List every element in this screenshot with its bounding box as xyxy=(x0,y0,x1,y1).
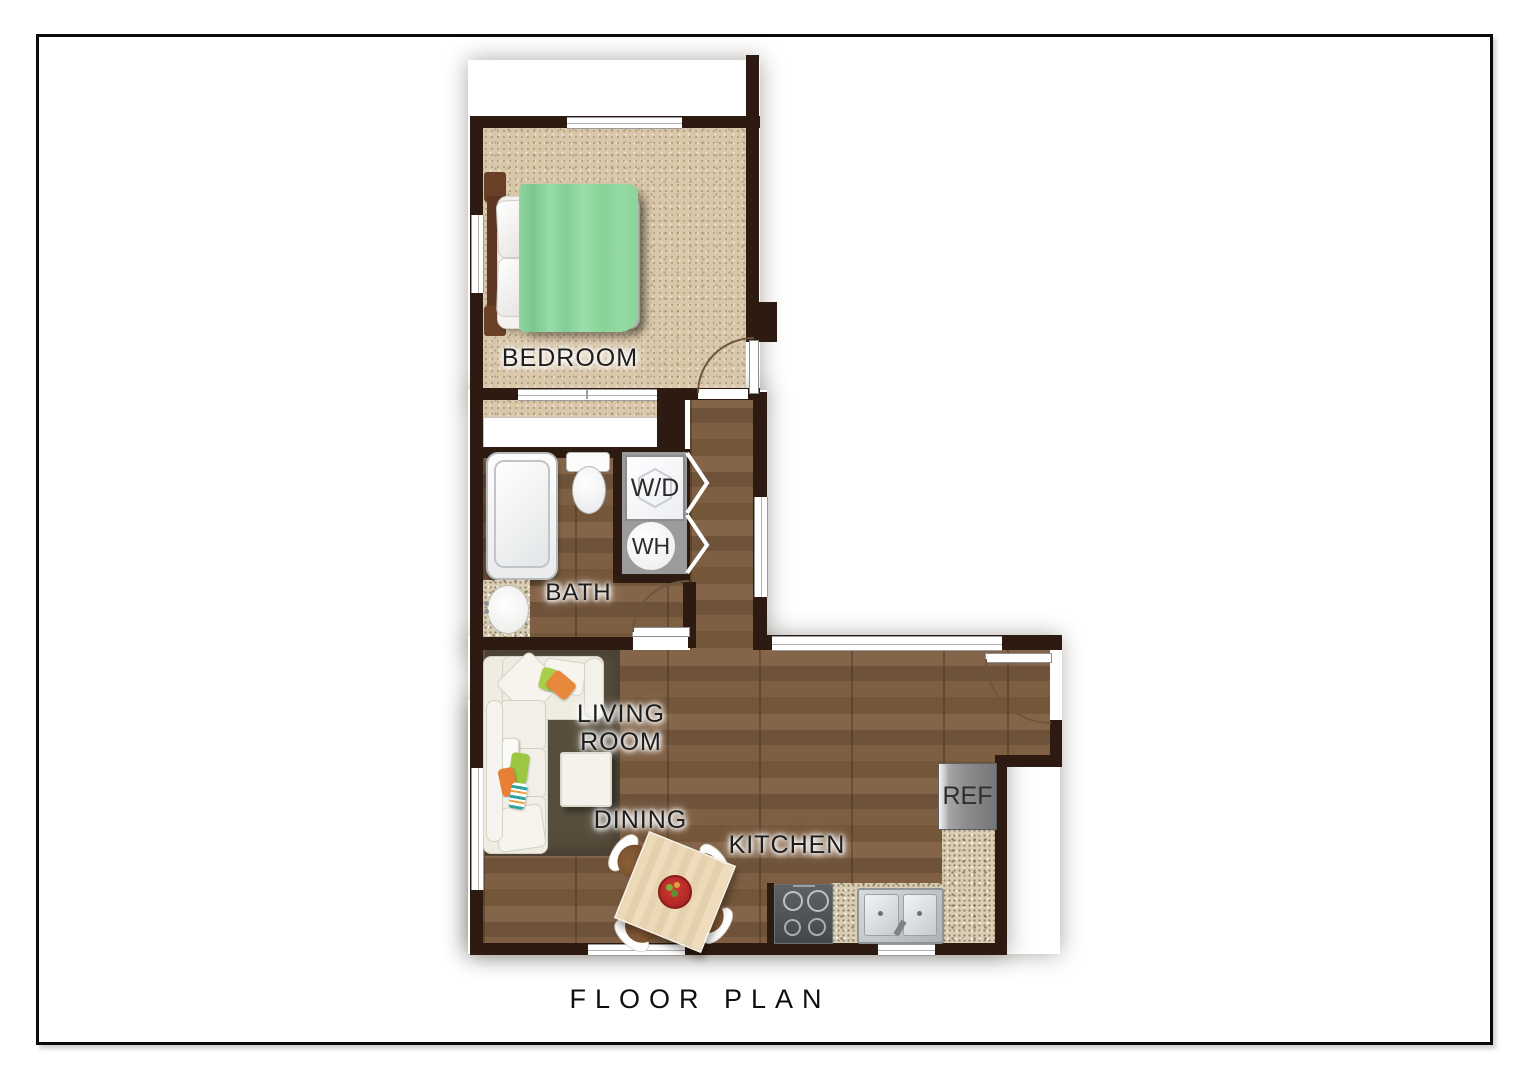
border-frame xyxy=(36,34,1493,1045)
floor-plan-page: W/D WH xyxy=(0,0,1527,1080)
